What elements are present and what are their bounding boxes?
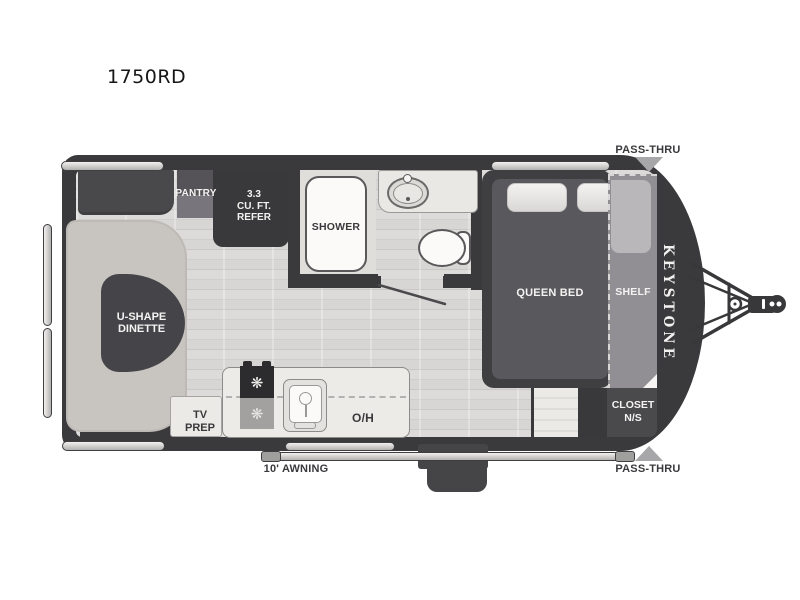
bath-door-jamb-right bbox=[443, 276, 452, 288]
tv-prep-label: TV PREP bbox=[170, 409, 230, 435]
awning-rod bbox=[261, 452, 635, 461]
tv-prep-label-line2: PREP bbox=[170, 422, 230, 435]
kitchen-faucet-icon bbox=[299, 392, 312, 405]
refer-label-line2: CU. FT. bbox=[214, 201, 294, 213]
refer-label-line1: 3.3 bbox=[214, 189, 294, 201]
burner-icon: ❋ bbox=[249, 376, 265, 391]
window-bar-rear-lower bbox=[43, 328, 52, 418]
window-bar-top-bedroom bbox=[491, 161, 610, 171]
hitch-coupler bbox=[748, 296, 776, 313]
awning-rod-cap bbox=[615, 451, 635, 462]
awning-rod-cap bbox=[261, 451, 281, 462]
pillow bbox=[507, 183, 567, 212]
window-bar-bottom-rear bbox=[62, 441, 165, 451]
brand-logo: KEYSTONE bbox=[658, 235, 676, 371]
bath-faucet-icon bbox=[403, 174, 412, 183]
awning-label: 10' AWNING bbox=[236, 463, 356, 475]
floorplan-canvas: 1750RD ❋ ❋ bbox=[0, 0, 800, 600]
burner-icon: ❋ bbox=[249, 407, 265, 422]
closet-label-line2: N/S bbox=[603, 412, 663, 425]
window-bar-bottom-mid bbox=[285, 442, 395, 451]
pass-thru-top-label: PASS-THRU bbox=[588, 144, 708, 156]
window-bar-rear-upper bbox=[43, 224, 52, 326]
shelf-fold-corner bbox=[643, 374, 657, 388]
closet-label: CLOSET N/S bbox=[603, 399, 663, 425]
pass-thru-top-arrow-icon bbox=[635, 157, 663, 172]
shower-label: SHOWER bbox=[296, 221, 376, 233]
refer-label: 3.3 CU. FT. REFER bbox=[214, 189, 294, 224]
kitchen-faucet-stem bbox=[305, 405, 307, 417]
shelf-label: SHELF bbox=[603, 286, 663, 298]
wardrobe-dresser bbox=[531, 388, 578, 437]
bath-drain-dot bbox=[406, 197, 410, 201]
entry-step-lower bbox=[427, 468, 487, 492]
pass-thru-bottom-label: PASS-THRU bbox=[588, 463, 708, 475]
bath-door-jamb-left bbox=[372, 276, 381, 288]
refer-label-line3: REFER bbox=[214, 212, 294, 224]
hitch-ball bbox=[768, 295, 786, 313]
dinette-label-line2: DINETTE bbox=[101, 323, 182, 335]
dinette-label-line1: U-SHAPE bbox=[101, 311, 182, 323]
kitchen-sink-drain bbox=[294, 422, 316, 429]
tv-prep-label-line1: TV bbox=[170, 409, 230, 422]
overhead-label: O/H bbox=[333, 412, 393, 424]
tongue-jack-icon bbox=[729, 298, 741, 310]
queen-bed-label: QUEEN BED bbox=[490, 287, 610, 299]
window-bar-top-rear bbox=[61, 161, 164, 171]
dinette-label: U-SHAPE DINETTE bbox=[101, 311, 182, 335]
page-title: 1750RD bbox=[107, 66, 186, 88]
pass-thru-bottom-arrow-icon bbox=[635, 446, 663, 461]
closet-label-line1: CLOSET bbox=[603, 399, 663, 412]
toilet-icon bbox=[418, 229, 466, 267]
bath-wall-bottom-left bbox=[288, 274, 378, 288]
shelf-bedding-showthrough bbox=[611, 180, 651, 253]
